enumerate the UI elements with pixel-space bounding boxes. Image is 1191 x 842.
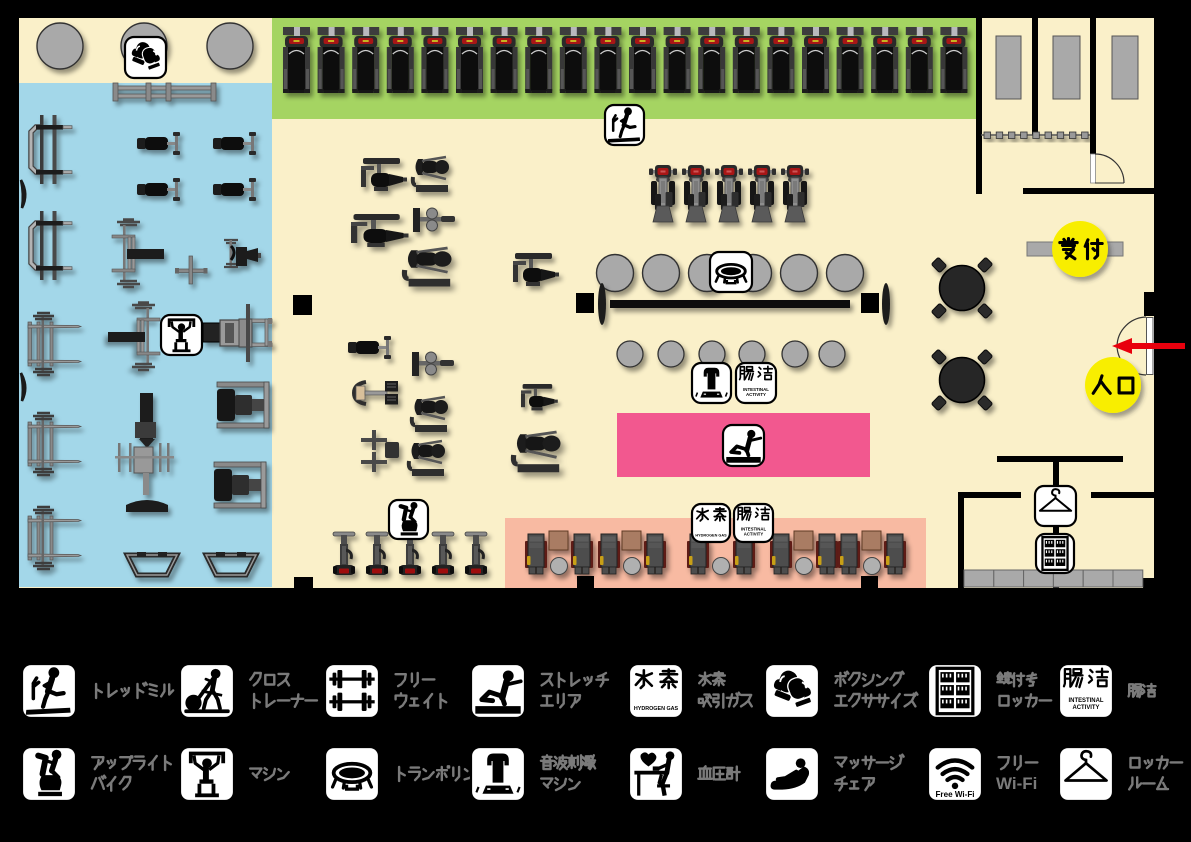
svg-text:ACTIVITY: ACTIVITY (746, 392, 766, 397)
svg-text:Free Wi-Fi: Free Wi-Fi (935, 790, 974, 799)
svg-text:Wi-Fi: Wi-Fi (996, 774, 1037, 793)
svg-text:ACTIVITY: ACTIVITY (744, 532, 764, 537)
svg-text:INTESTINAL: INTESTINAL (743, 387, 769, 392)
svg-text:HYDROGEN GAS: HYDROGEN GAS (695, 533, 727, 537)
svg-text:INTESTINAL: INTESTINAL (1069, 698, 1104, 704)
svg-text:HYDROGEN GAS: HYDROGEN GAS (634, 706, 679, 712)
svg-text:INTESTINAL: INTESTINAL (741, 527, 767, 532)
svg-text:ACTIVITY: ACTIVITY (1072, 705, 1099, 711)
